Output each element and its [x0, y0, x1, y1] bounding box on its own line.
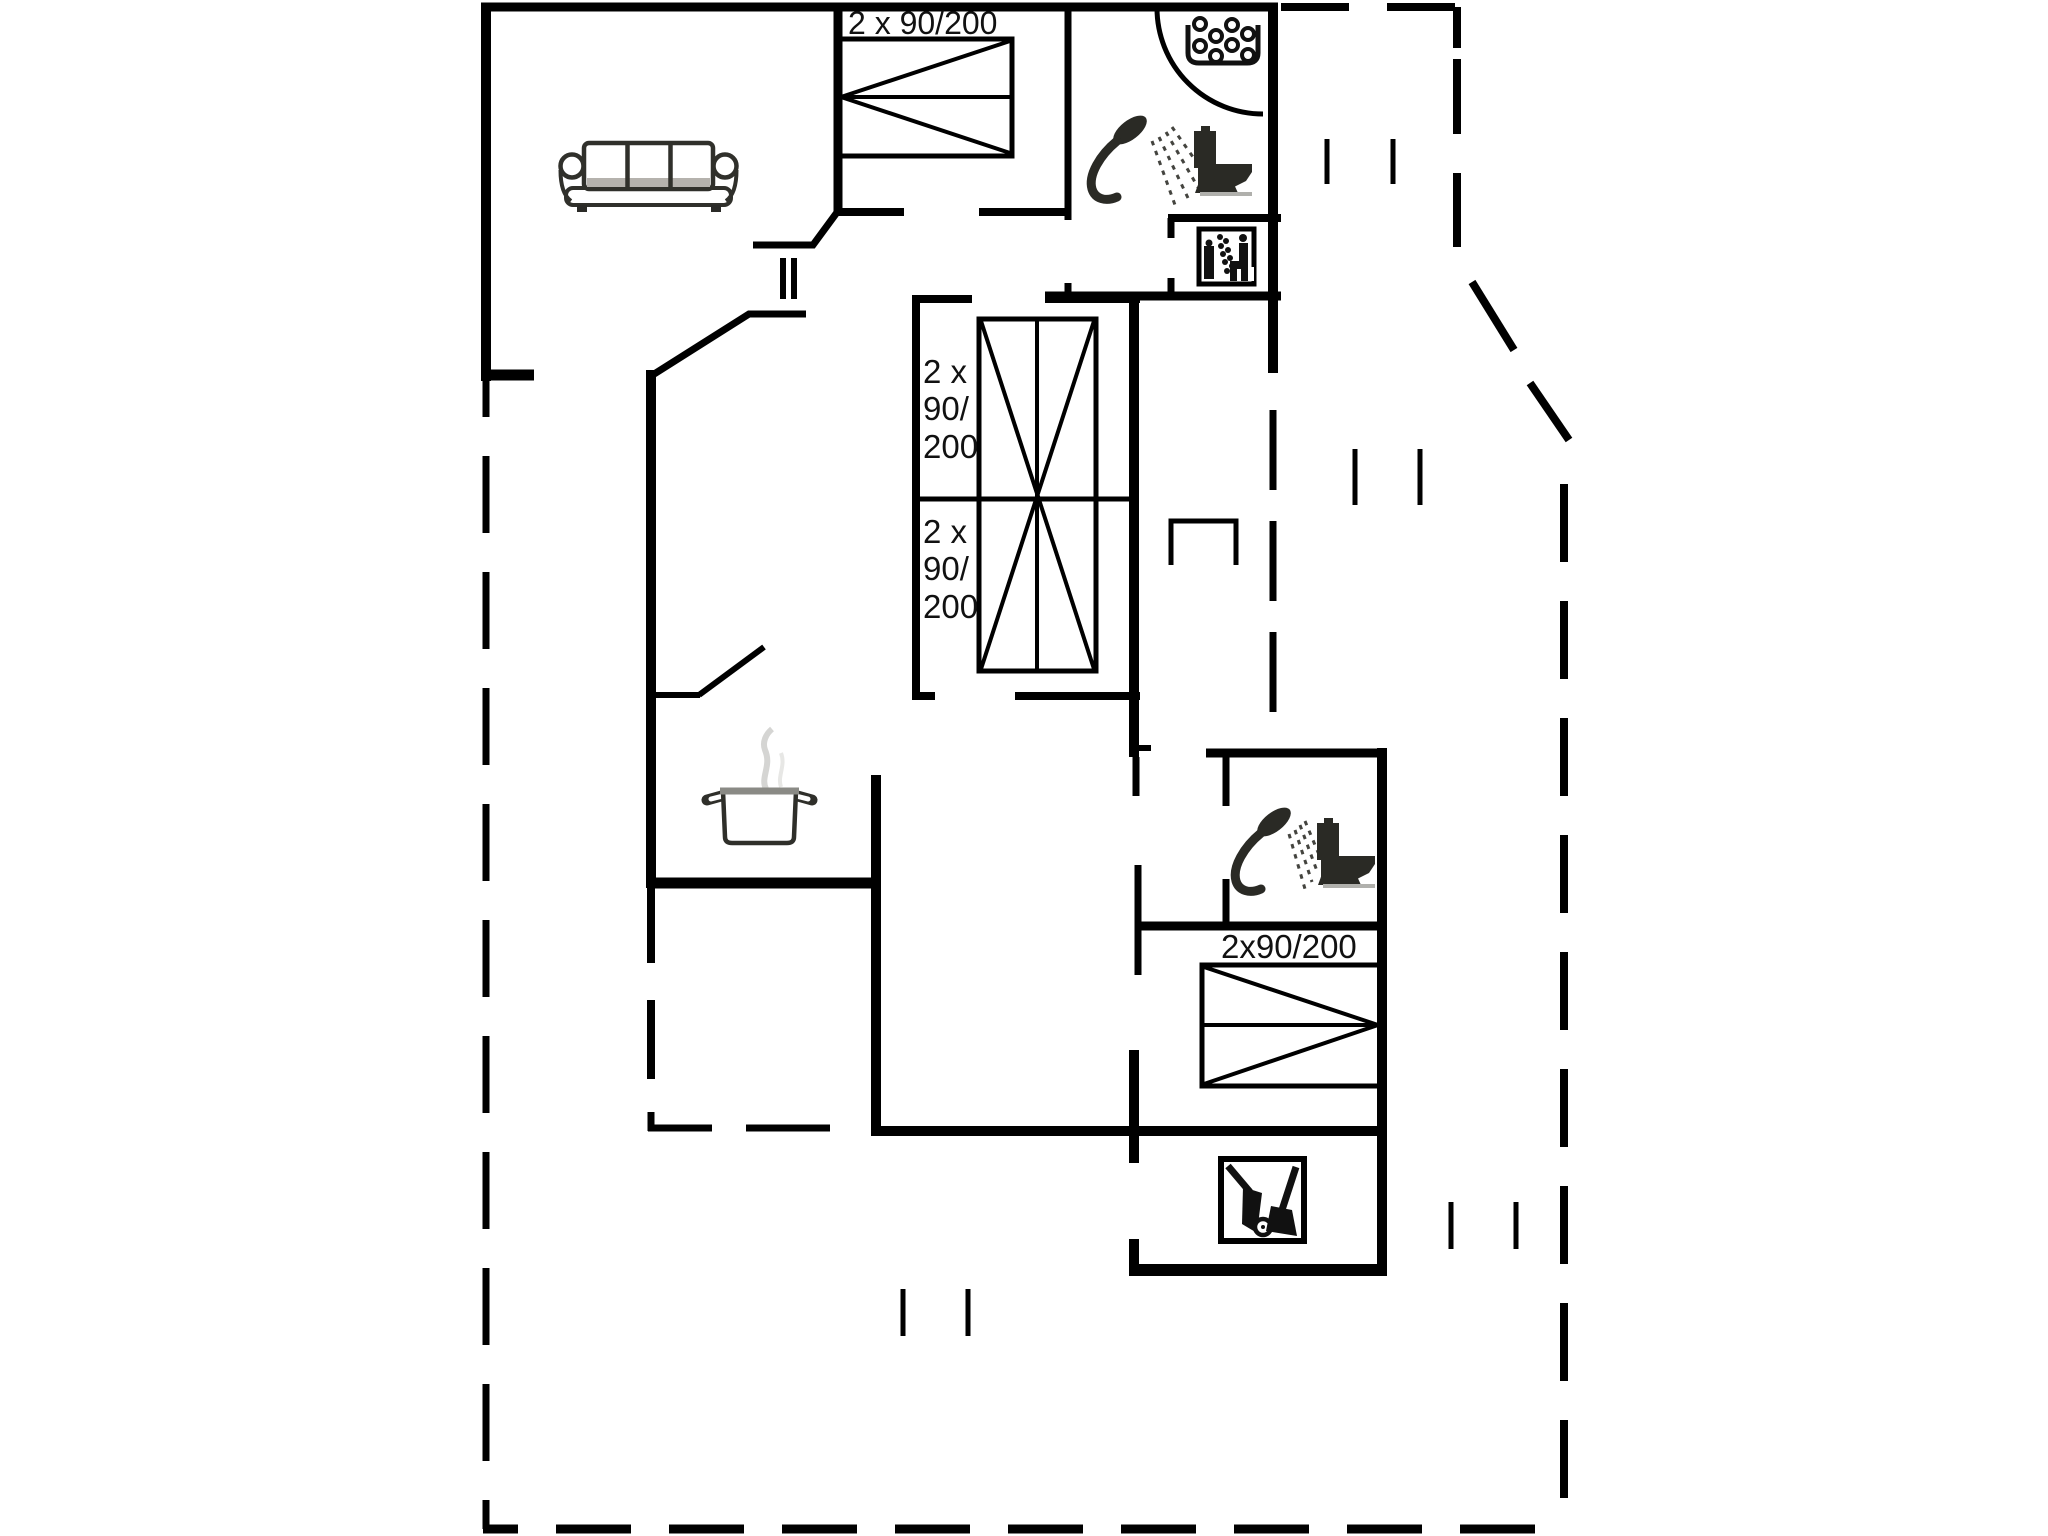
- svg-text:2 x: 2 x: [923, 353, 968, 390]
- svg-text:2x90/200: 2x90/200: [1221, 928, 1357, 965]
- svg-text:90/: 90/: [923, 550, 970, 587]
- svg-text:90/: 90/: [923, 390, 970, 427]
- svg-text:200: 200: [923, 588, 978, 625]
- svg-text:2 x 90/200: 2 x 90/200: [848, 5, 997, 41]
- svg-text:200: 200: [923, 428, 978, 465]
- svg-text:2 x: 2 x: [923, 513, 968, 550]
